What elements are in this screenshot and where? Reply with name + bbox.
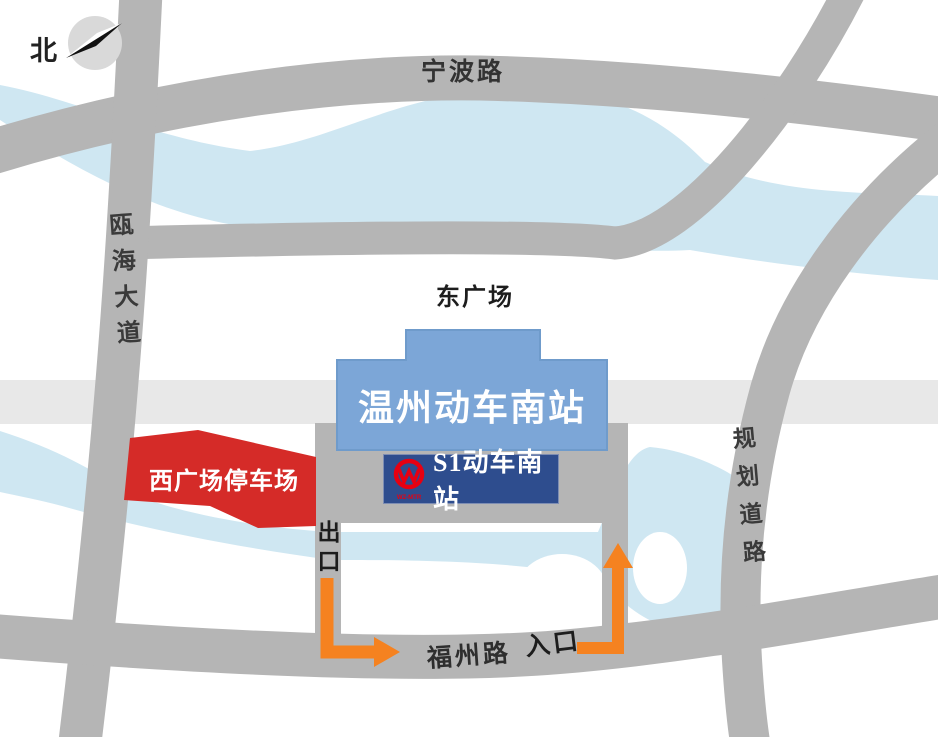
- station-area-map: 北 宁波路 瓯海大道 规划道路 东广场 福州路 出口 入口 温州动车南站 西广场…: [0, 0, 938, 737]
- exit-label: 出口: [315, 520, 338, 578]
- north-label: 北: [30, 38, 57, 65]
- river-island: [516, 554, 608, 630]
- compass-icon: [66, 16, 122, 70]
- station-name-label: 温州动车南站: [337, 360, 607, 450]
- river-island: [633, 532, 687, 604]
- parking-label: 西广场停车场: [131, 461, 317, 496]
- metro-station-label: S1动车南站: [433, 442, 558, 516]
- wenzhou-rail-transit-logo-icon: WZ-MTR: [389, 456, 429, 502]
- entrance-label: 入口: [524, 629, 583, 661]
- road-label-ningbo: 宁波路: [421, 60, 505, 85]
- road-label-fuzhou: 福州路: [426, 641, 512, 672]
- metro-station-badge: WZ-MTR S1动车南站: [383, 454, 559, 504]
- rail-logo-subtext: WZ-MTR: [389, 495, 429, 501]
- east-square-label: 东广场: [436, 286, 514, 310]
